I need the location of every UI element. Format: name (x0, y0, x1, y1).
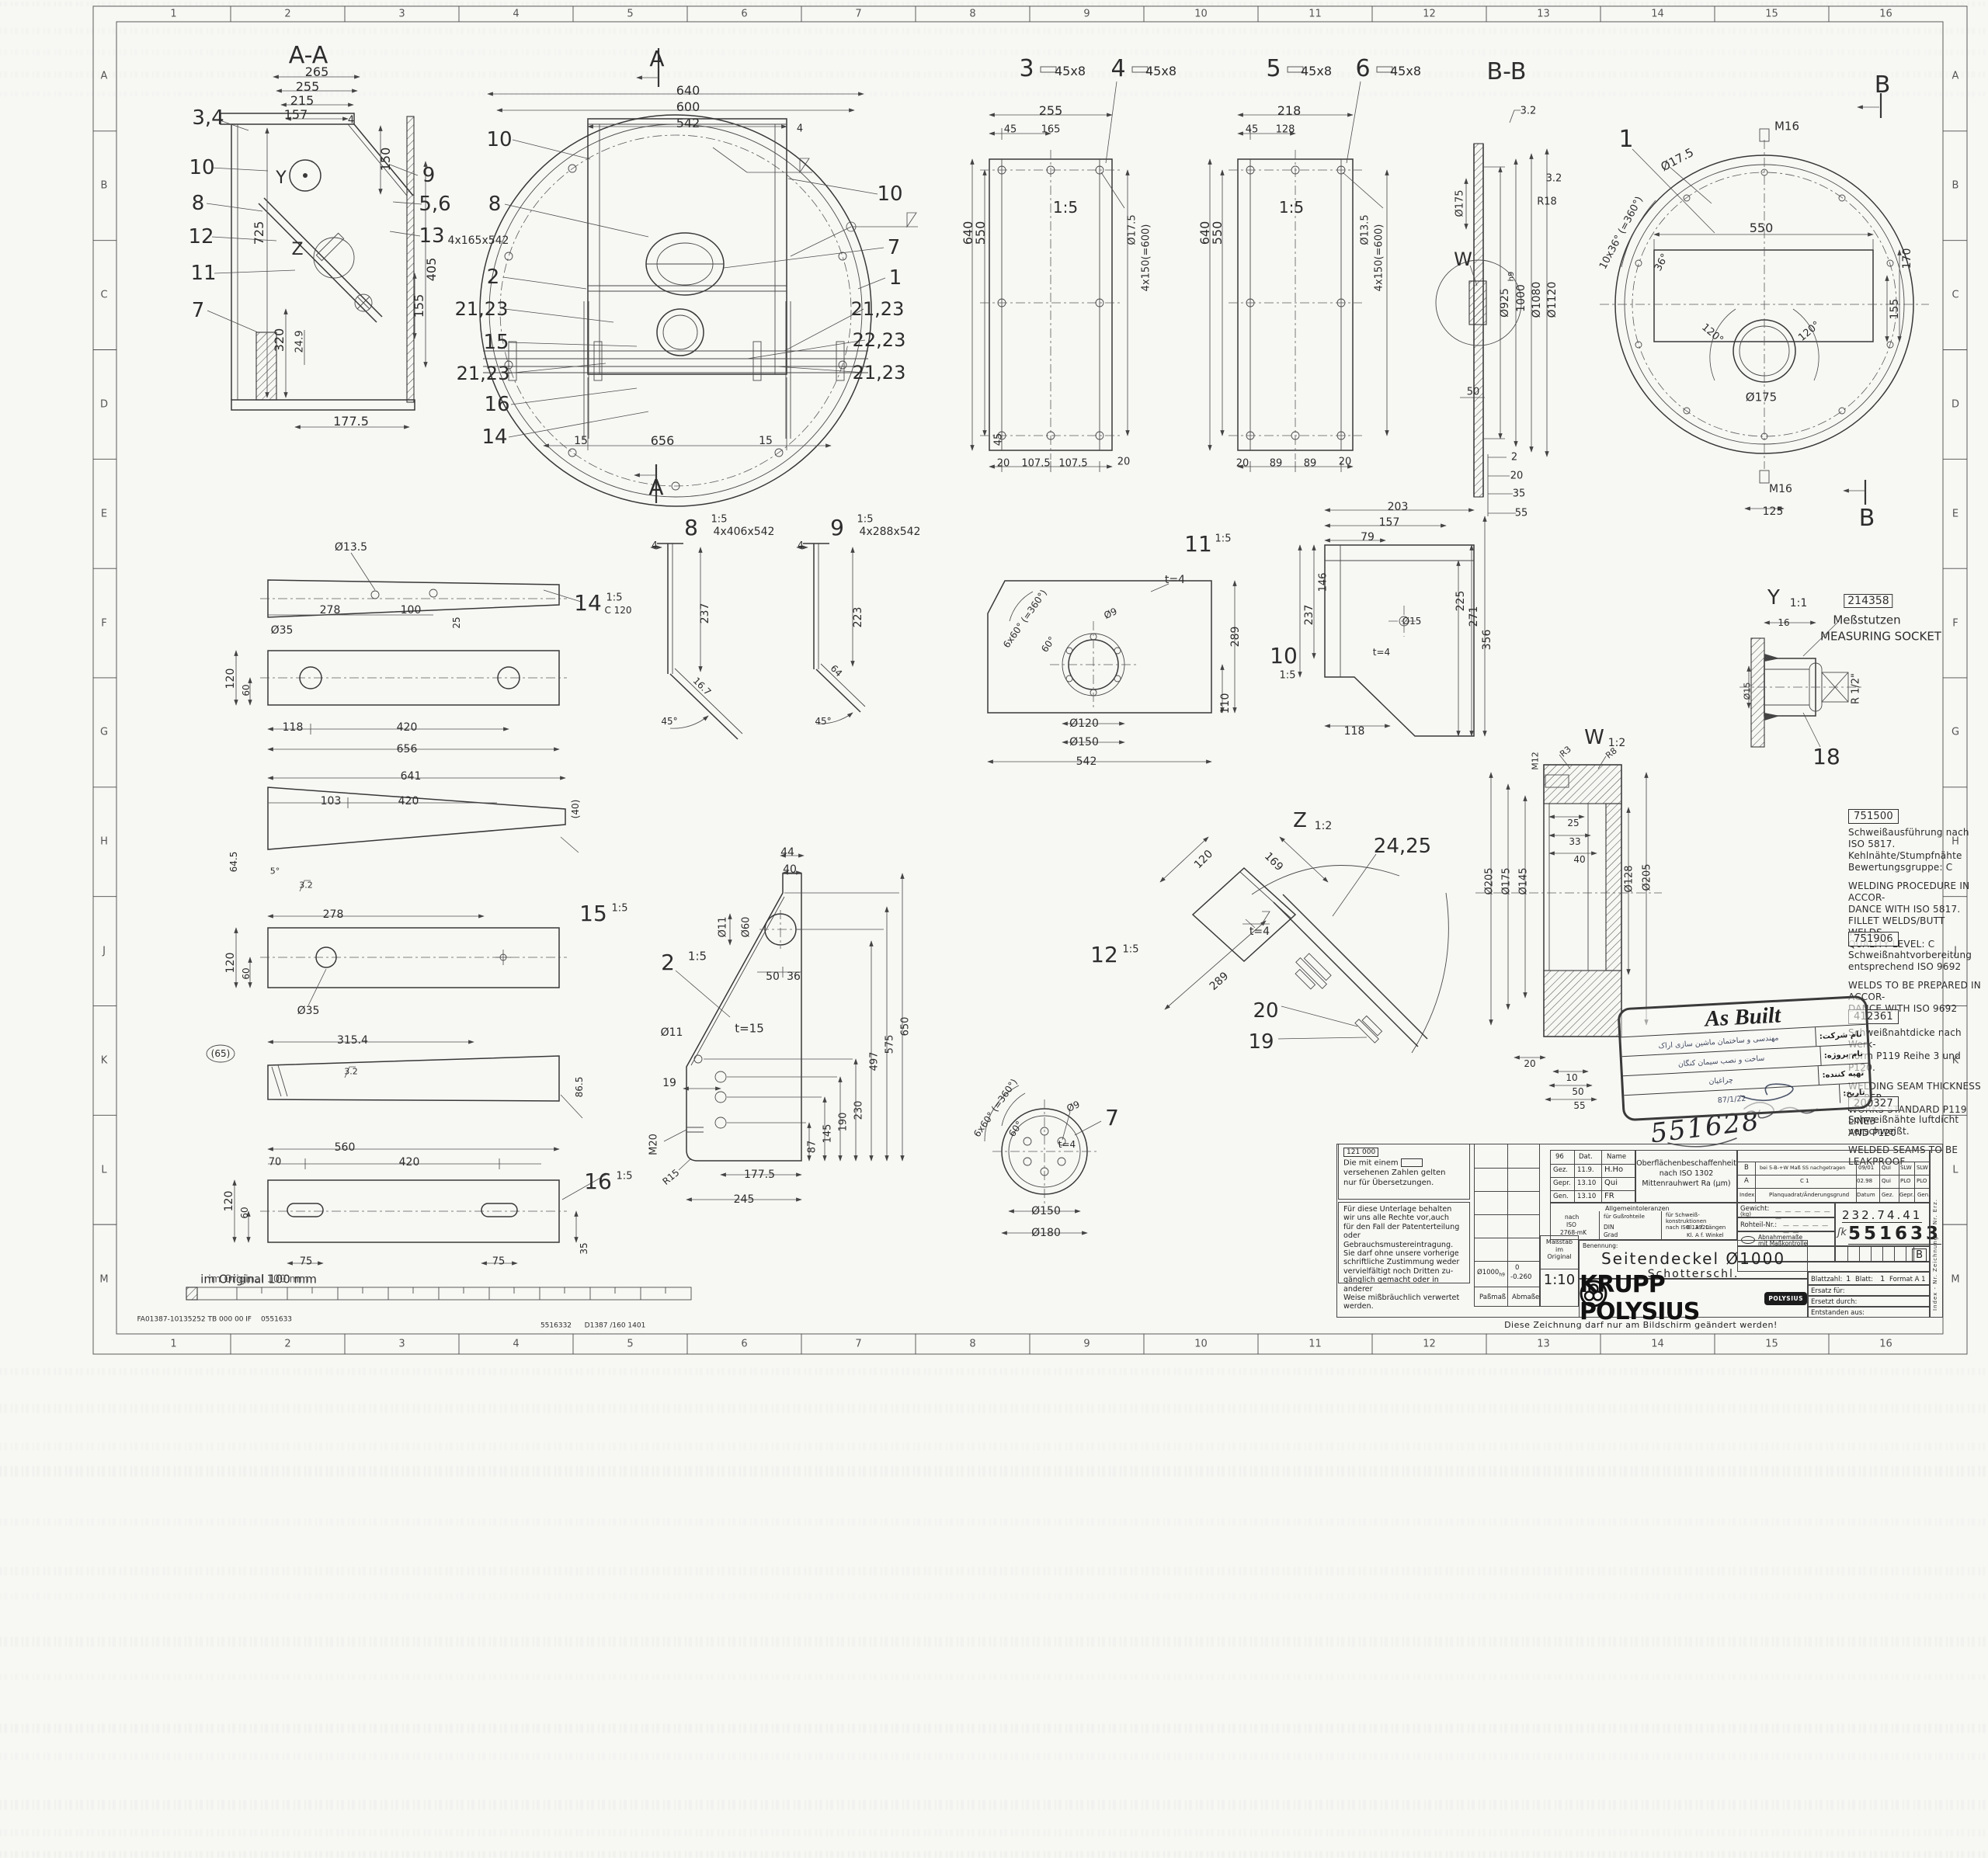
dimension-label: 50 (1572, 1087, 1583, 1096)
dimension-label: 10 (486, 130, 512, 150)
grid-reference-label: 9 (1083, 9, 1090, 19)
sheet-label: Blatt: (1855, 1276, 1873, 1283)
dimension-label: 36 (787, 971, 801, 982)
row-label: Gen. (1553, 1193, 1569, 1200)
note-german-text: Schweißnähte luftdichtverschweißt. (1848, 1114, 1982, 1137)
revision-cells-row: B (1835, 1246, 1930, 1262)
dimension-label: 20 (1524, 1059, 1535, 1068)
dimension-label: 100 (401, 605, 422, 616)
dimension-label: 35 (579, 1242, 589, 1254)
grid-reference-label: G (100, 728, 108, 738)
dimension-label: Ø925 (1500, 288, 1510, 318)
dimension-label: 55 (1515, 509, 1528, 519)
grid-reference-label: 12 (1423, 1339, 1436, 1349)
dimension-label: 225 (1455, 591, 1466, 612)
dimension-label: 1:2 (1315, 821, 1333, 832)
sheets-label: Blattzahl: (1811, 1276, 1842, 1283)
dimension-label: 215 (290, 95, 315, 107)
dimension-label: 20 (1253, 1001, 1278, 1021)
paper-bleedthrough (0, 1637, 1988, 1647)
dimension-label: 79 (1361, 532, 1375, 543)
dimension-label: 575 (885, 1035, 895, 1054)
rights-line: Weise mißbräuchlich verwertet werden. (1343, 1294, 1465, 1311)
tol-grad: Grad (1604, 1231, 1618, 1238)
rev-gez: Qui (1882, 1165, 1891, 1171)
rev-letter: B (1744, 1164, 1749, 1172)
surface-note-cell: Oberflächenbeschaffenheit nach ISO 1302 … (1635, 1150, 1737, 1203)
rev-gepr: PLO (1900, 1178, 1910, 1184)
dimension-label: IF (245, 1317, 252, 1324)
paper-bleedthrough (0, 1724, 1988, 1733)
dimension-label: 656 (651, 435, 675, 447)
idx-h: Datum (1857, 1192, 1875, 1198)
dimension-label: 14 (481, 427, 507, 447)
paper-bleedthrough (0, 28, 1988, 34)
view-angle-9 (797, 544, 865, 724)
grid-reference-label: 13 (1537, 9, 1550, 19)
dimension-label: Ø1080 (1531, 282, 1542, 318)
rev-desc: bei 5-B-+W Maß SS nachgetragen (1760, 1165, 1845, 1171)
row-name: H.Ho (1604, 1165, 1623, 1174)
grid-reference-label: 6 (741, 9, 747, 19)
weight-cell: Gewicht: (kg) — — — — — — — (1737, 1203, 1835, 1217)
paper-bleedthrough (0, 1753, 1988, 1760)
dimension-label: 33 (1569, 837, 1580, 846)
grid-reference-label: 15 (1765, 9, 1778, 19)
tolerance-cell: Allgemeintoleranzen nach ISO 2768-mK für… (1550, 1203, 1737, 1240)
dimension-label: 5516332 (540, 1323, 572, 1330)
fit-tol-top: 0 (1515, 1264, 1519, 1272)
dimension-label: A (648, 477, 663, 498)
dimension-label: 278 (320, 605, 341, 616)
sheet-value: 1 (1880, 1275, 1885, 1283)
dimension-label: 255 (1039, 105, 1063, 117)
rights-line: für den Fall der Patenterteilung (1343, 1223, 1465, 1231)
grid-reference-label: 3 (398, 9, 405, 19)
paper-bleedthrough (0, 1443, 1988, 1450)
grid-reference-label: 1 (170, 9, 176, 19)
dimension-label: 15 (759, 436, 773, 446)
scale-value: 1:10 (1541, 1272, 1578, 1288)
company-cell: KRUPP POLYSIUS POLYSIUS (1579, 1279, 1808, 1318)
weight-unit: (kg) (1740, 1211, 1751, 1217)
dimension-label: 45 (1004, 125, 1017, 135)
dimension-label: 650 (901, 1017, 911, 1037)
dimension-label: 35 (1513, 489, 1526, 499)
created-from-label: Entstanden aus: (1811, 1309, 1865, 1317)
dimension-label: 315.4 (337, 1035, 368, 1046)
row-date: 13.10 (1577, 1179, 1596, 1187)
dimension-label: 2 (1511, 453, 1517, 463)
paper-bleedthrough (0, 1368, 1988, 1375)
dimension-label: Meßstutzen (1833, 615, 1900, 627)
dimension-label: 11 (190, 263, 216, 283)
revision-letter: B (1912, 1249, 1927, 1262)
numbers-cell: 232.74.41 ʃk 551633 (1835, 1203, 1930, 1246)
grid-reference-label: 7 (855, 1339, 861, 1349)
grid-reference-label: 10 (1194, 9, 1208, 19)
col-name: Name (1607, 1153, 1626, 1161)
drawing-number: 232.74.41 (1842, 1208, 1922, 1223)
dimension-label: 45 (1246, 125, 1259, 135)
rights-line: Für diese Unterlage behalten (1343, 1205, 1465, 1214)
dimension-label: 1:5 (688, 951, 707, 963)
sheets-value: 1 (1846, 1275, 1851, 1283)
dimension-label: 1:5 (606, 593, 623, 603)
rev-date: 02.98 (1857, 1178, 1872, 1184)
dimension-label: t=4 (1165, 575, 1185, 585)
dimension-label: 64.5 (229, 852, 238, 873)
dimension-label: 7 (1105, 1107, 1119, 1129)
grid-reference-label: 12 (1423, 9, 1436, 19)
dimension-label: (65) (211, 1049, 231, 1058)
dimension-label: Ø15 (1402, 616, 1422, 626)
translation-note-cell: 121 000 Die mit einem versehenen Zahlen … (1338, 1144, 1470, 1200)
rights-line: gänglich gemacht oder in anderer (1343, 1276, 1465, 1294)
row-label: Gez. (1553, 1166, 1568, 1174)
replaced-by-cell: Ersetzt durch: (1808, 1296, 1930, 1307)
dimension-label: 120 (224, 1191, 235, 1212)
title-block: 121 000 Die mit einem versehenen Zahlen … (1330, 1144, 1943, 1329)
dimension-label: 20 (1236, 459, 1249, 469)
translation-note-line: versehenen Zahlen gelten (1343, 1169, 1465, 1179)
dimension-label: 1:5 (1123, 945, 1139, 955)
grid-reference-label: M (1951, 1274, 1959, 1284)
dimension-label: Ø17.5 (1128, 214, 1138, 245)
paper-bleedthrough (0, 1829, 1988, 1836)
grid-reference-label: 14 (1651, 1339, 1664, 1349)
tol-nach: nach (1565, 1214, 1579, 1221)
dimension-label: Ø128 (1625, 865, 1635, 892)
dimension-label: 146 (1319, 573, 1329, 592)
dimension-label: 11 (1184, 533, 1212, 555)
view-plate-12 (1160, 837, 1328, 1009)
dimension-label: 75 (492, 1257, 506, 1267)
grid-reference-label: M (99, 1274, 108, 1284)
dimension-label: Ø180 (1031, 1228, 1061, 1238)
grid-reference-label: H (100, 837, 108, 847)
dimension-label: Ø13.5 (1361, 214, 1371, 245)
dimension-label: (40) (571, 800, 580, 819)
grid-reference-label: D (100, 399, 108, 409)
translation-box-glyph (1401, 1158, 1423, 1167)
dimension-label: 15 (579, 903, 607, 925)
dimension-label: 289 (1230, 627, 1241, 648)
paper-bleedthrough (0, 1800, 1988, 1810)
dimension-label: 157 (1379, 517, 1400, 528)
dimension-label: 3.2 (1521, 106, 1537, 116)
dimension-label: 203 (1388, 502, 1409, 512)
year: 96 (1555, 1153, 1564, 1161)
dimension-label: M20 (649, 1134, 659, 1155)
dimension-label: 25 (452, 616, 461, 628)
surface-line: Mittenrauhwert Ra (µm) (1636, 1179, 1736, 1189)
dimension-label: Ø11 (718, 917, 728, 938)
dimension-label: 725 (253, 221, 266, 245)
dimension-label: t=4 (1058, 1140, 1076, 1149)
grid-reference-label: 11 (1309, 1339, 1322, 1349)
view-section-a-a (207, 77, 426, 427)
dimension-label: 118 (1344, 726, 1365, 737)
dimension-label: R18 (1537, 197, 1557, 207)
dimension-label: M12 (1531, 752, 1540, 770)
dimension-label: Ø35 (271, 625, 294, 636)
dimension-label: 1:5 (1215, 534, 1232, 544)
dimension-label: 223 (853, 607, 864, 628)
row-date: 11.9. (1577, 1166, 1594, 1174)
dimension-label: Ø15 (1743, 682, 1752, 700)
dimension-label: 15 (483, 332, 509, 352)
dimension-label: 4x150(=600) (1142, 224, 1152, 292)
dimension-label: 278 (323, 909, 344, 920)
dimension-label: 10 (1566, 1073, 1577, 1082)
dimension-label: 20 (1339, 457, 1352, 467)
dimension-label: 1:5 (1280, 671, 1296, 681)
dimension-label: 2 (487, 267, 500, 287)
scale-cell: Maßstab im Original 1:10 (1540, 1235, 1579, 1307)
dimension-label: 45° (815, 717, 831, 726)
dimension-label: 3.2 (299, 881, 313, 890)
grid-reference-label: E (1952, 509, 1958, 519)
dimension-label: 600 (676, 101, 700, 113)
row-label: Gepr. (1553, 1179, 1571, 1187)
grid-reference-label: B (1952, 181, 1959, 191)
dimension-label: 15 (574, 436, 588, 446)
tol-schweiss: für Schweiß- (1666, 1212, 1700, 1218)
dimension-label: 120 (225, 669, 236, 689)
note-code: 751906 (1848, 932, 1899, 946)
dimension-label: 16 (584, 1171, 612, 1193)
grid-reference-label: 8 (969, 1339, 975, 1349)
fit-columns-cell: Ø1000h9 0 -0.260 Paßmaß Abmaße (1474, 1144, 1540, 1307)
dimension-label: Ø13.5 (335, 542, 367, 553)
rights-line: schriftliche Zustimmung weder (1343, 1258, 1465, 1266)
dimension-label: 7 (888, 238, 901, 258)
dimension-label: B (1859, 507, 1875, 530)
dimension-label: R 1/2" (1851, 673, 1861, 704)
dimension-label: 24.9 (295, 331, 305, 353)
dimension-label: Ø175 (1455, 189, 1465, 217)
dimension-label: 75 (300, 1257, 313, 1267)
dimension-label: 12 (188, 227, 214, 247)
part-name: Seitendeckel Ø1000 (1580, 1249, 1807, 1268)
tol-kl: Kl. A f. Winkel (1687, 1232, 1724, 1238)
grid-reference-label: im Original 100 mm (208, 1275, 309, 1285)
document-number: 551633 (1848, 1224, 1941, 1245)
grid-reference-label: 2 (284, 1339, 290, 1349)
dimension-label: 87 (808, 1141, 818, 1154)
tol-din: DIN (1604, 1224, 1614, 1231)
dimension-label: 542 (676, 117, 700, 130)
dimension-label: 542 (1076, 756, 1097, 767)
view-angle-8 (651, 544, 742, 739)
paper-bleedthrough (0, 71, 1988, 78)
tol-schweiss: konstruktionen (1666, 1218, 1706, 1224)
dimension-label: 356 (1482, 630, 1493, 651)
grid-reference-label: D (1952, 399, 1959, 409)
grid-reference-label: 6 (741, 1339, 747, 1349)
dimension-label: 550 (1750, 222, 1774, 234)
rev-desc: C 1 (1800, 1178, 1809, 1184)
dimension-label: 170 (1902, 248, 1913, 269)
col-dat: Dat. (1579, 1153, 1593, 1161)
dimension-label: 9 (422, 165, 436, 186)
dimension-label: 103 (321, 796, 342, 807)
stamp-field-label: نام شرکت: (1815, 1025, 1867, 1046)
dimension-label: 1:1 (1790, 598, 1808, 609)
tol-iso2: 2768-mK (1560, 1229, 1587, 1236)
screen-edit-note: Diese Zeichnung darf nur am Bildschirm g… (1431, 1320, 1851, 1330)
replacement-for-cell: Ersatz für: (1808, 1285, 1930, 1296)
note-german-text: Schweißnahtvorbereitungentsprechend ISO … (1848, 950, 1982, 973)
dimension-label: 20 (1510, 471, 1524, 481)
paper-bleedthrough (0, 1567, 1988, 1575)
dimension-label: 271 (1468, 606, 1479, 627)
dimension-label: 5° (270, 867, 280, 876)
dimension-label: Ø35 (297, 1005, 320, 1016)
dimension-label: 405 (426, 258, 438, 282)
dimension-label: 19 (662, 1078, 676, 1089)
dimension-label: 10 (877, 184, 902, 204)
dimension-label: 1:5 (1053, 200, 1078, 215)
dimension-label: 245 (734, 1194, 755, 1205)
grid-reference-label: 5 (627, 1339, 633, 1349)
dimension-label: 150 (380, 148, 392, 172)
rawpart-cell: Rohteil-Nr.: — — — — — — — (1737, 1217, 1835, 1231)
dimension-label: 107.5 (1021, 459, 1050, 469)
dimension-label: 118 (283, 722, 304, 733)
scale-label: Original (1541, 1253, 1578, 1261)
dimension-label: Ø1120 (1547, 282, 1558, 318)
dimension-label: 1:5 (857, 515, 874, 525)
dimension-label: 10 (1270, 645, 1298, 667)
dimension-label: Z (1293, 811, 1307, 831)
dimension-label: 21,23 (455, 300, 509, 318)
dimension-label: 3.2 (344, 1068, 358, 1076)
dimension-label: 155 (413, 294, 426, 318)
dimension-label: 45 (994, 433, 1004, 446)
dimension-label: 60 (242, 684, 251, 696)
doc-number-scribble: ʃk (1837, 1227, 1847, 1238)
code-label: 214358 (1844, 594, 1892, 608)
dimension-label: 50 (1467, 387, 1480, 398)
paper-bleedthrough (0, 1519, 1988, 1526)
krupp-rings-logo-icon (1580, 1280, 1607, 1308)
paper-bleedthrough (0, 92, 1988, 96)
dimension-label: 9 (830, 517, 844, 539)
dimension-label: h9 (1508, 272, 1516, 282)
tol-guss: für Gußrohteile (1604, 1214, 1645, 1220)
dimension-label: 237 (1304, 605, 1315, 626)
view-bar-14 (236, 553, 581, 749)
fit-label: Paßmaß (1479, 1294, 1506, 1301)
rev-letter: A (1744, 1177, 1749, 1185)
grid-reference-label: 13 (1537, 1339, 1550, 1349)
dimension-label: 18 (1812, 746, 1840, 768)
dimension-label: 60 (240, 1207, 249, 1218)
translation-note-line: Die mit einem (1343, 1159, 1399, 1168)
dimension-label: MEASURING SOCKET (1820, 631, 1941, 643)
dimension-label: Y (1767, 588, 1780, 608)
dimension-label: 420 (398, 796, 419, 807)
dimension-label: 550 (975, 221, 987, 245)
grid-reference-label: 16 (1879, 9, 1892, 19)
replaced-by-label: Ersetzt durch: (1811, 1298, 1857, 1306)
translation-note-line: nur für Übersetzungen. (1343, 1179, 1465, 1189)
dimension-label: Z (291, 241, 303, 259)
grid-reference-label: F (101, 618, 106, 628)
dimension-label: 3,4 (192, 108, 224, 128)
grid-reference-label: K (101, 1055, 108, 1065)
surface-line: nach ISO 1302 (1636, 1169, 1736, 1179)
translation-code: 121 000 (1343, 1148, 1378, 1157)
idx-h: Gepr. (1899, 1192, 1914, 1198)
dimension-label: 5,6 (419, 194, 450, 214)
dimension-label: 21,23 (853, 363, 906, 382)
rev-gen: SLW (1917, 1165, 1928, 1171)
rights-line: oder Gebrauchsmustereintragung. (1343, 1231, 1465, 1249)
dimension-label: 120 (225, 953, 236, 974)
dimension-label: 4x150(=600) (1375, 224, 1385, 292)
dimension-label: 4x406x542 (714, 526, 775, 537)
dimension-label: 4x288x542 (860, 526, 921, 537)
dimension-label: 128 (1276, 125, 1295, 135)
dimension-label: 89 (1304, 459, 1317, 469)
grid-reference-label: 16 (1879, 1339, 1892, 1349)
dimension-label: Ø60 (742, 917, 752, 938)
grid-reference-label: E (101, 509, 107, 519)
dimension-label: 560 (335, 1142, 356, 1153)
grid-reference-label: 10 (1194, 1339, 1208, 1349)
dimension-label: 320 (273, 328, 286, 352)
dimension-label: 86.5 (575, 1077, 584, 1098)
dimension-label: C 120 (604, 606, 631, 615)
dimension-label: 4 (348, 116, 354, 126)
grid-reference-label: J (103, 946, 106, 957)
as-built-stamp: As Built نام شرکت: مهندسی و ساختمان ماشی… (1617, 995, 1872, 1122)
paper-bleedthrough (0, 2, 1988, 6)
dimension-label: 1 (889, 268, 902, 288)
dimension-label: Ø175 (1502, 867, 1512, 894)
dimension-label: D1387 /160 1401 (585, 1323, 646, 1330)
dimension-label: 8 (192, 193, 205, 214)
dimension-label: t=15 (735, 1023, 764, 1035)
dimension-label: M16 (1774, 121, 1799, 133)
dimension-label: 4 (797, 124, 803, 134)
rev-gen: PLO (1917, 1178, 1927, 1184)
dimension-label: Ø175 (1746, 392, 1777, 404)
paper-bleedthrough (0, 1466, 1988, 1477)
stamp-field-label: نام پروژه: (1819, 1044, 1868, 1065)
idx-h: Gen. (1917, 1192, 1930, 1198)
dimension-label: 24,25 (1374, 836, 1431, 856)
grid-reference-label: L (101, 1165, 106, 1175)
rights-note-cell: Für diese Unterlage behalten wir uns all… (1338, 1202, 1470, 1283)
dimension-label: 110 (1220, 693, 1231, 714)
view-bar-15 (236, 778, 579, 1005)
dimension-label: 230 (854, 1101, 864, 1120)
dimension-label: FA01387-10135252 TB 000 00 (137, 1317, 243, 1324)
dimension-label: 1000 (1516, 284, 1527, 312)
dimension-label: 8 (488, 194, 502, 214)
dimension-label: Ø205 (1485, 867, 1495, 894)
dimension-label: M16 (1769, 484, 1792, 495)
dimension-label: 218 (1277, 105, 1302, 117)
dimension-label: 21,23 (457, 364, 510, 383)
row-date: 13.10 (1577, 1193, 1596, 1200)
dimension-label: 4x165x542 (448, 235, 509, 246)
dimension-label: 16 (1778, 618, 1789, 627)
